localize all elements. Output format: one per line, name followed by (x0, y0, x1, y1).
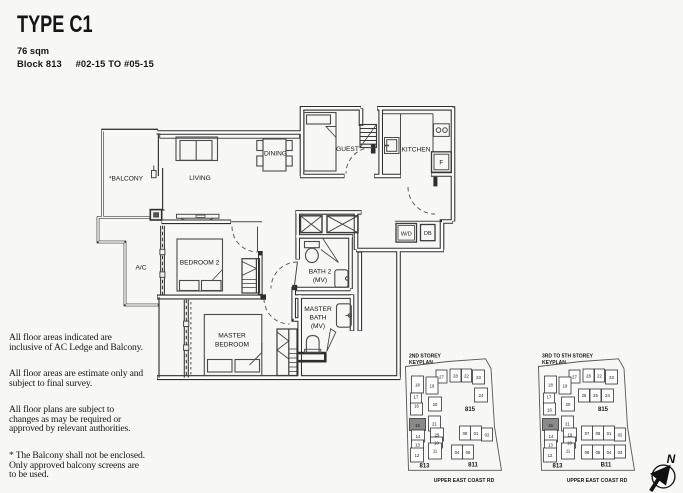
svg-text:LIVING: LIVING (189, 175, 211, 182)
svg-text:11: 11 (433, 449, 438, 454)
svg-text:GUEST: GUEST (336, 146, 359, 153)
svg-text:04: 04 (455, 450, 460, 455)
svg-text:27: 27 (572, 375, 577, 380)
svg-text:MASTER: MASTER (218, 332, 246, 339)
svg-text:B11: B11 (601, 463, 612, 469)
svg-text:19: 19 (430, 384, 435, 389)
svg-text:13: 13 (415, 443, 420, 448)
svg-text:2ND STOREY: 2ND STOREY (409, 354, 442, 360)
svg-text:05: 05 (466, 450, 471, 455)
svg-text:04: 04 (607, 450, 612, 455)
svg-text:12: 12 (415, 453, 420, 458)
svg-text:20: 20 (433, 402, 438, 407)
svg-text:08: 08 (463, 431, 468, 436)
svg-text:01: 01 (607, 431, 612, 436)
svg-text:02: 02 (618, 433, 623, 438)
svg-text:18: 18 (415, 383, 420, 388)
svg-text:16: 16 (414, 404, 419, 409)
svg-text:23: 23 (476, 375, 481, 380)
svg-text:07: 07 (585, 431, 590, 436)
svg-text:813: 813 (552, 464, 563, 470)
svg-text:01: 01 (474, 431, 479, 436)
svg-text:12: 12 (548, 453, 553, 458)
svg-text:(MV): (MV) (311, 323, 325, 330)
svg-text:24: 24 (605, 393, 610, 398)
svg-text:15: 15 (548, 423, 553, 428)
svg-text:26: 26 (582, 393, 587, 398)
svg-text:24: 24 (479, 393, 484, 398)
svg-text:20: 20 (566, 402, 571, 407)
svg-text:A/C: A/C (136, 264, 147, 271)
svg-text:18: 18 (548, 383, 553, 388)
svg-text:19: 19 (568, 433, 573, 438)
svg-text:14: 14 (549, 434, 554, 439)
svg-text:02: 02 (485, 433, 490, 438)
svg-text:06: 06 (585, 450, 590, 455)
svg-text:14: 14 (416, 434, 421, 439)
svg-text:N: N (667, 452, 676, 466)
svg-text:W/D: W/D (401, 231, 412, 237)
svg-text:08: 08 (596, 431, 601, 436)
svg-text:22: 22 (464, 374, 469, 379)
svg-text:28: 28 (453, 374, 458, 379)
svg-text:BATH 2: BATH 2 (309, 268, 332, 275)
svg-text:10: 10 (434, 441, 439, 446)
svg-text:17: 17 (414, 395, 419, 400)
svg-text:KITCHEN: KITCHEN (402, 147, 431, 154)
svg-text:811: 811 (468, 463, 478, 469)
svg-text:21: 21 (565, 422, 570, 427)
svg-text:UPPER EAST COAST RD: UPPER EAST COAST RD (567, 478, 628, 484)
svg-text:19: 19 (563, 384, 568, 389)
svg-text:29: 29 (435, 433, 440, 438)
svg-text:(MV): (MV) (313, 277, 327, 284)
svg-text:11: 11 (566, 449, 571, 454)
svg-text:21: 21 (432, 422, 437, 427)
svg-text:813: 813 (419, 464, 430, 470)
svg-text:03: 03 (618, 450, 623, 455)
svg-text:23: 23 (609, 375, 614, 380)
svg-text:BEDROOM 2: BEDROOM 2 (180, 260, 220, 267)
svg-text:28: 28 (586, 374, 591, 379)
svg-text:16: 16 (547, 408, 552, 413)
svg-text:15: 15 (415, 423, 420, 428)
svg-text:BATH: BATH (309, 314, 326, 321)
svg-text:*BALCONY: *BALCONY (109, 175, 144, 182)
svg-text:3RD TO 5TH STOREY: 3RD TO 5TH STOREY (542, 354, 594, 360)
svg-text:22: 22 (597, 374, 602, 379)
svg-text:DINING: DINING (264, 150, 287, 157)
svg-text:13: 13 (548, 443, 553, 448)
svg-text:10: 10 (567, 441, 572, 446)
svg-text:UPPER EAST COAST RD: UPPER EAST COAST RD (434, 478, 495, 484)
svg-text:17: 17 (547, 395, 552, 400)
svg-text:27: 27 (439, 375, 444, 380)
svg-text:BEDROOM: BEDROOM (215, 342, 249, 349)
svg-text:MASTER: MASTER (304, 306, 332, 313)
svg-text:05: 05 (596, 450, 601, 455)
svg-text:25: 25 (593, 393, 598, 398)
svg-text:815: 815 (598, 407, 609, 413)
svg-text:815: 815 (465, 407, 476, 413)
svg-text:F: F (439, 159, 443, 166)
svg-text:DB: DB (424, 231, 432, 237)
